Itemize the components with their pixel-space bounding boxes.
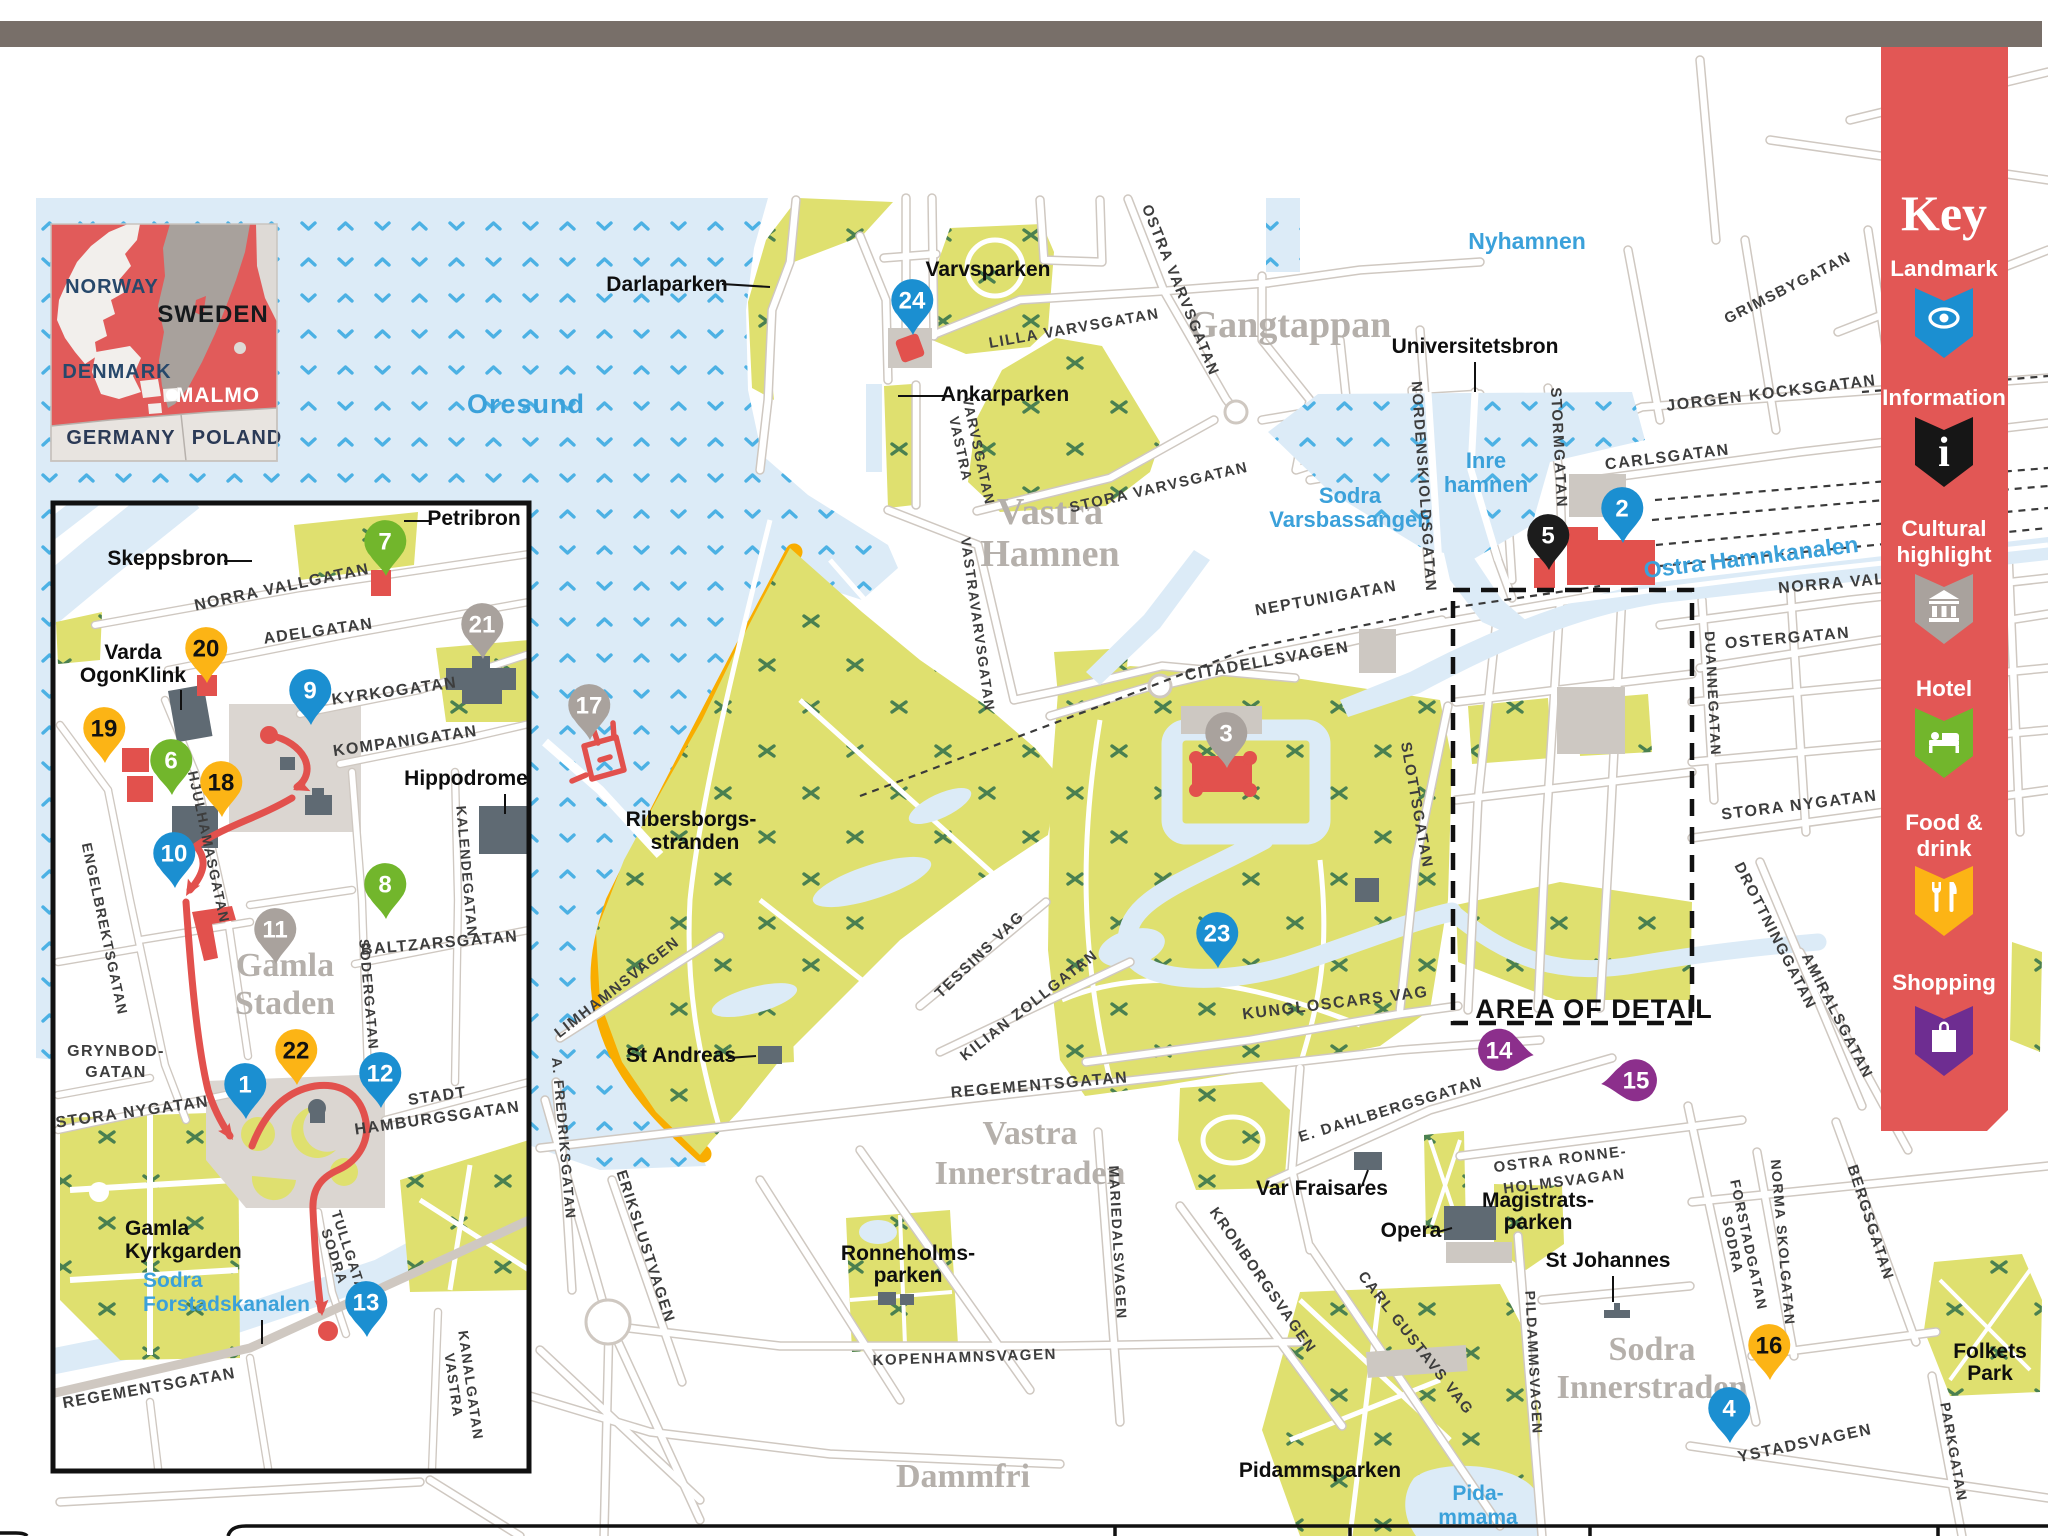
- svg-text:14: 14: [1486, 1038, 1513, 1065]
- svg-text:24: 24: [899, 288, 926, 315]
- svg-text:Ribersborgs-: Ribersborgs-: [626, 808, 757, 831]
- svg-text:10: 10: [161, 841, 188, 868]
- svg-text:highlight: highlight: [1897, 542, 1992, 567]
- svg-text:Cultural: Cultural: [1901, 516, 1986, 541]
- svg-text:GRYNBOD-: GRYNBOD-: [67, 1043, 165, 1060]
- svg-text:NORWAY: NORWAY: [65, 276, 159, 298]
- svg-text:Dammfri: Dammfri: [896, 1458, 1030, 1495]
- svg-text:Forstadskanalen: Forstadskanalen: [143, 1293, 310, 1316]
- svg-text:1: 1: [238, 1072, 251, 1099]
- svg-text:Hippodrome: Hippodrome: [404, 767, 528, 790]
- svg-text:8: 8: [378, 872, 391, 899]
- svg-text:Skeppsbron: Skeppsbron: [107, 547, 228, 570]
- svg-text:hamnen: hamnen: [1444, 472, 1528, 497]
- svg-text:Magistrats-: Magistrats-: [1482, 1189, 1594, 1212]
- svg-text:Petribron: Petribron: [427, 507, 520, 530]
- svg-text:Varda: Varda: [104, 641, 162, 664]
- svg-text:Ankarparken: Ankarparken: [941, 383, 1069, 406]
- svg-text:13: 13: [353, 1290, 380, 1317]
- svg-text:Universitetsbron: Universitetsbron: [1392, 335, 1559, 358]
- svg-text:9: 9: [303, 678, 316, 705]
- svg-text:MALMO: MALMO: [176, 384, 260, 407]
- svg-text:Ronneholms-: Ronneholms-: [841, 1242, 975, 1265]
- svg-text:7: 7: [378, 529, 391, 556]
- svg-text:Gangtappan: Gangtappan: [1189, 304, 1392, 346]
- svg-text:DENMARK: DENMARK: [62, 361, 171, 383]
- svg-text:Inre: Inre: [1466, 448, 1506, 473]
- svg-text:drink: drink: [1916, 836, 1971, 861]
- svg-text:Sodra: Sodra: [1319, 483, 1382, 508]
- svg-text:19: 19: [91, 716, 118, 743]
- svg-text:Opera: Opera: [1381, 1219, 1442, 1242]
- svg-text:17: 17: [576, 693, 603, 720]
- svg-text:Kyrkgarden: Kyrkgarden: [125, 1240, 242, 1263]
- svg-text:Vastra: Vastra: [982, 1115, 1077, 1152]
- svg-text:15: 15: [1623, 1068, 1650, 1095]
- svg-text:AREA OF DETAIL: AREA OF DETAIL: [1475, 994, 1713, 1024]
- svg-text:GATAN: GATAN: [85, 1064, 147, 1081]
- svg-text:Hamnen: Hamnen: [980, 533, 1119, 575]
- svg-text:Staden: Staden: [235, 985, 335, 1022]
- svg-text:Gamla: Gamla: [125, 1217, 190, 1240]
- svg-text:GERMANY: GERMANY: [66, 427, 175, 449]
- svg-text:i: i: [1938, 430, 1950, 476]
- svg-text:Pida-: Pida-: [1452, 1482, 1503, 1505]
- svg-text:OgonKlink: OgonKlink: [80, 664, 186, 687]
- svg-text:stranden: stranden: [651, 831, 740, 854]
- svg-text:POLAND: POLAND: [192, 427, 282, 449]
- svg-text:3: 3: [1219, 721, 1232, 748]
- svg-text:Shopping: Shopping: [1892, 970, 1996, 995]
- svg-text:16: 16: [1756, 1333, 1783, 1360]
- svg-text:SWEDEN: SWEDEN: [157, 301, 268, 328]
- svg-text:Varsbassangen: Varsbassangen: [1269, 507, 1430, 532]
- svg-text:21: 21: [469, 612, 496, 639]
- svg-text:4: 4: [1722, 1396, 1736, 1423]
- svg-text:20: 20: [193, 636, 220, 663]
- svg-text:Sodra: Sodra: [1609, 1331, 1696, 1368]
- svg-text:Landmark: Landmark: [1890, 256, 1998, 281]
- svg-text:5: 5: [1541, 523, 1554, 550]
- svg-text:Pidammsparken: Pidammsparken: [1239, 1459, 1401, 1482]
- svg-text:Var Fraisares: Var Fraisares: [1256, 1177, 1388, 1200]
- svg-text:Darlaparken: Darlaparken: [606, 273, 727, 296]
- svg-text:23: 23: [1204, 921, 1231, 948]
- svg-text:6: 6: [164, 748, 177, 775]
- svg-text:18: 18: [208, 770, 235, 797]
- svg-text:Folkets: Folkets: [1953, 1340, 2027, 1363]
- svg-text:22: 22: [283, 1038, 310, 1065]
- svg-text:Hotel: Hotel: [1916, 676, 1972, 701]
- svg-text:Key: Key: [1901, 185, 1987, 241]
- svg-text:parken: parken: [874, 1264, 943, 1287]
- svg-text:2: 2: [1615, 496, 1628, 523]
- svg-text:Food &: Food &: [1905, 810, 1982, 835]
- svg-text:Information: Information: [1882, 385, 2006, 410]
- svg-text:Sodra: Sodra: [143, 1269, 203, 1292]
- svg-text:parken: parken: [1504, 1211, 1573, 1234]
- svg-text:Gamla: Gamla: [236, 947, 334, 984]
- svg-text:Nyhamnen: Nyhamnen: [1468, 228, 1586, 254]
- svg-text:Innerstraden: Innerstraden: [935, 1155, 1126, 1192]
- svg-text:Oresund: Oresund: [467, 389, 585, 419]
- svg-text:St Johannes: St Johannes: [1546, 1249, 1671, 1272]
- svg-text:Varvsparken: Varvsparken: [926, 258, 1051, 281]
- svg-text:Park: Park: [1967, 1362, 2013, 1385]
- svg-text:12: 12: [367, 1061, 394, 1088]
- svg-text:St Andreas: St Andreas: [626, 1044, 736, 1067]
- svg-text:11: 11: [262, 917, 287, 944]
